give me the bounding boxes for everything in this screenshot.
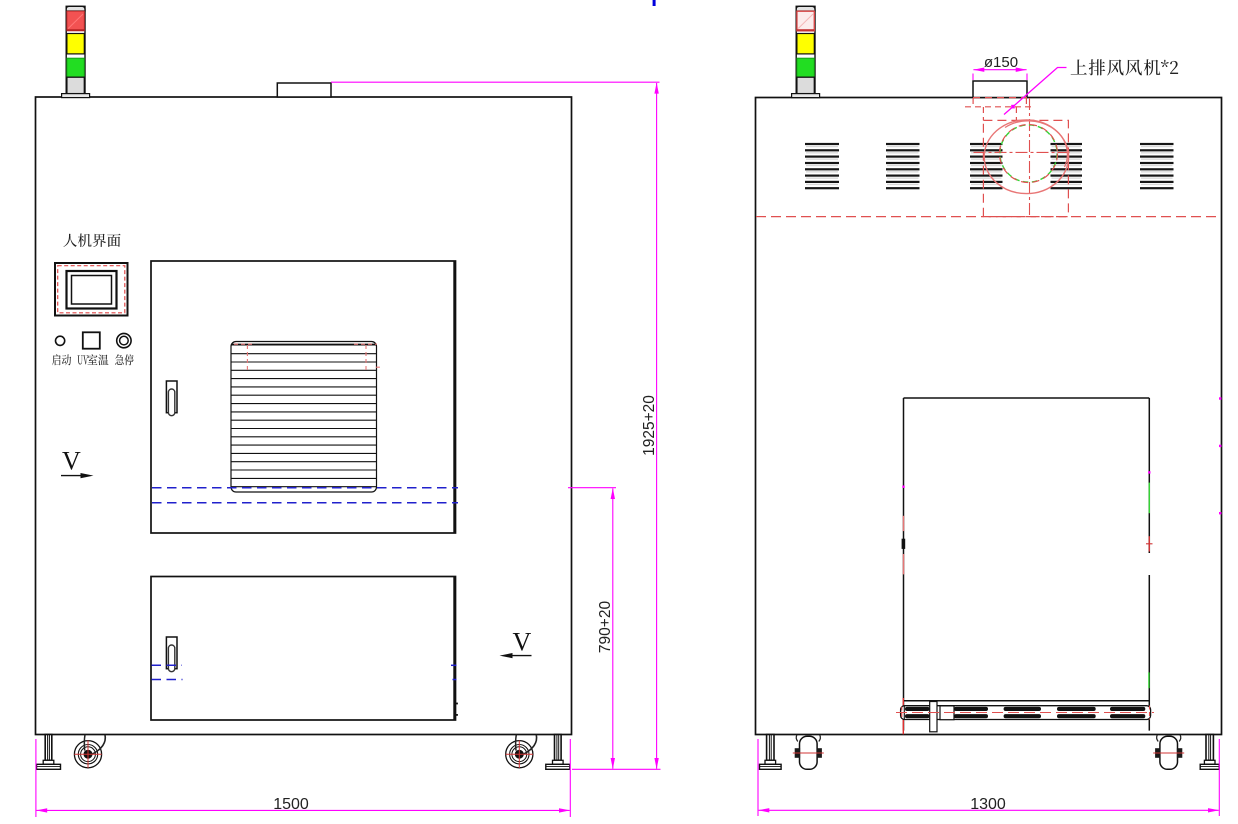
svg-text:790+20: 790+20 [597,601,614,654]
svg-text:1500: 1500 [273,796,309,813]
svg-text:ø150: ø150 [984,54,1018,71]
svg-text:1300: 1300 [970,796,1006,813]
svg-text:1925+20: 1925+20 [641,395,658,456]
svg-text:V: V [513,628,532,657]
svg-text:V: V [62,447,81,476]
